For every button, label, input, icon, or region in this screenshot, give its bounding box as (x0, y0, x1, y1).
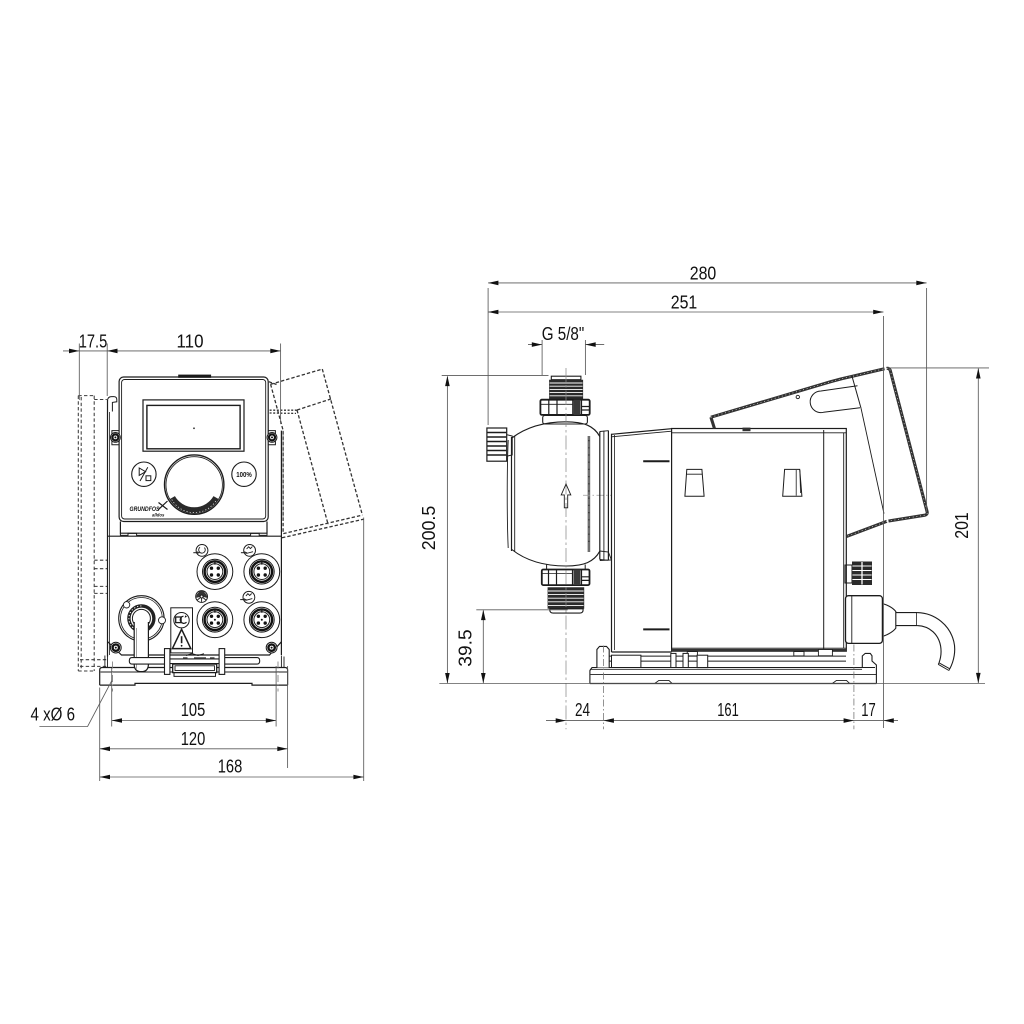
svg-text:alldos: alldos (152, 513, 165, 518)
svg-text:120: 120 (181, 728, 206, 749)
svg-text:24: 24 (575, 699, 590, 720)
svg-text:17: 17 (861, 699, 876, 720)
svg-text:161: 161 (717, 699, 739, 720)
svg-text:17.5: 17.5 (79, 331, 108, 352)
svg-text:168: 168 (218, 756, 243, 777)
svg-text:4 xØ 6: 4 xØ 6 (31, 704, 76, 725)
svg-text:201: 201 (951, 512, 972, 539)
svg-text:G 5/8": G 5/8" (542, 323, 585, 344)
svg-text:110: 110 (177, 331, 204, 352)
svg-text:105: 105 (181, 699, 206, 720)
svg-text:39.5: 39.5 (455, 629, 476, 667)
svg-text:100%: 100% (236, 470, 252, 479)
svg-text:251: 251 (671, 292, 698, 313)
svg-text:200.5: 200.5 (418, 506, 439, 551)
svg-text:280: 280 (690, 263, 717, 284)
